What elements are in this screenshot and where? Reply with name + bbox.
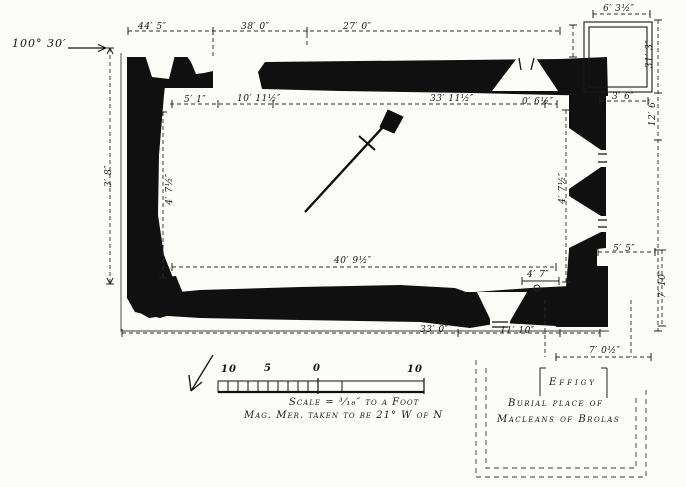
dim-top-mid-span: 38′ 0″ [241, 22, 269, 32]
dim-inner-west-offset: 5′ 1″ [184, 95, 206, 105]
effigy-label: Effigy [549, 377, 597, 388]
dim-inner-door-span: 10′ 11½″ [237, 94, 281, 104]
burial-label-line2: Macleans of Brolas [497, 414, 620, 425]
dim-inner-nave-span: 33′ 11½″ [430, 94, 474, 104]
dim-annexe-gap: 3′ 6″ [612, 92, 634, 102]
dim-se-step: 5′ 5″ [613, 244, 635, 254]
dim-top-left-span: 44′ 5″ [138, 22, 166, 32]
dim-top-right-span: 27′ 0″ [343, 22, 371, 32]
magnetic-arrow [189, 355, 213, 391]
dim-left-outer: 3′ 8″ [104, 154, 114, 198]
dim-left-inner: 4′ 7½″ [165, 167, 175, 211]
north-arrow [305, 110, 403, 212]
dim-bottom-left-span: 33′ 0″ [420, 325, 448, 335]
bearing-label: 100° 30′ [12, 37, 67, 50]
scale-tick-5: 5 [264, 363, 272, 374]
dim-enclosure-width: 7′ 0½″ [589, 346, 620, 356]
scale-caption: Scale = ³⁄₁₆″ to a Foot [289, 397, 419, 408]
bearing-arrow [68, 45, 106, 52]
burial-label-line1: Burial place of [508, 398, 603, 409]
plan-sheet: 100° 30′ 44′ 5″ 38′ 0″ 27′ 0″ 6′ 3½″ 5′ … [0, 0, 686, 487]
dim-right-mid: 12′ 6″ [648, 90, 658, 134]
dim-annexe-width: 6′ 3½″ [603, 4, 634, 14]
scale-bar [218, 378, 424, 394]
dim-bottom-right-span: 11′ 10″ [500, 326, 535, 336]
dim-inner-length: 40′ 9½″ [334, 256, 372, 266]
dim-right-upper: 31′ 3″ [645, 32, 655, 76]
dim-right-lower: 7′ 10″ [658, 262, 668, 306]
scale-tick-0: 0 [313, 363, 321, 374]
scale-tick-10-right: 10 [407, 364, 423, 375]
dim-south-window: 4′ 7″ [527, 270, 549, 280]
dim-inner-east-offset: 0′ 6½″ [522, 97, 553, 107]
scale-tick-10-left: 10 [221, 364, 237, 375]
magnetic-caption: Mag. Mer. taken to be 21° W of N [244, 410, 443, 421]
dim-right-inner: 4′ 7½″ [558, 166, 568, 210]
